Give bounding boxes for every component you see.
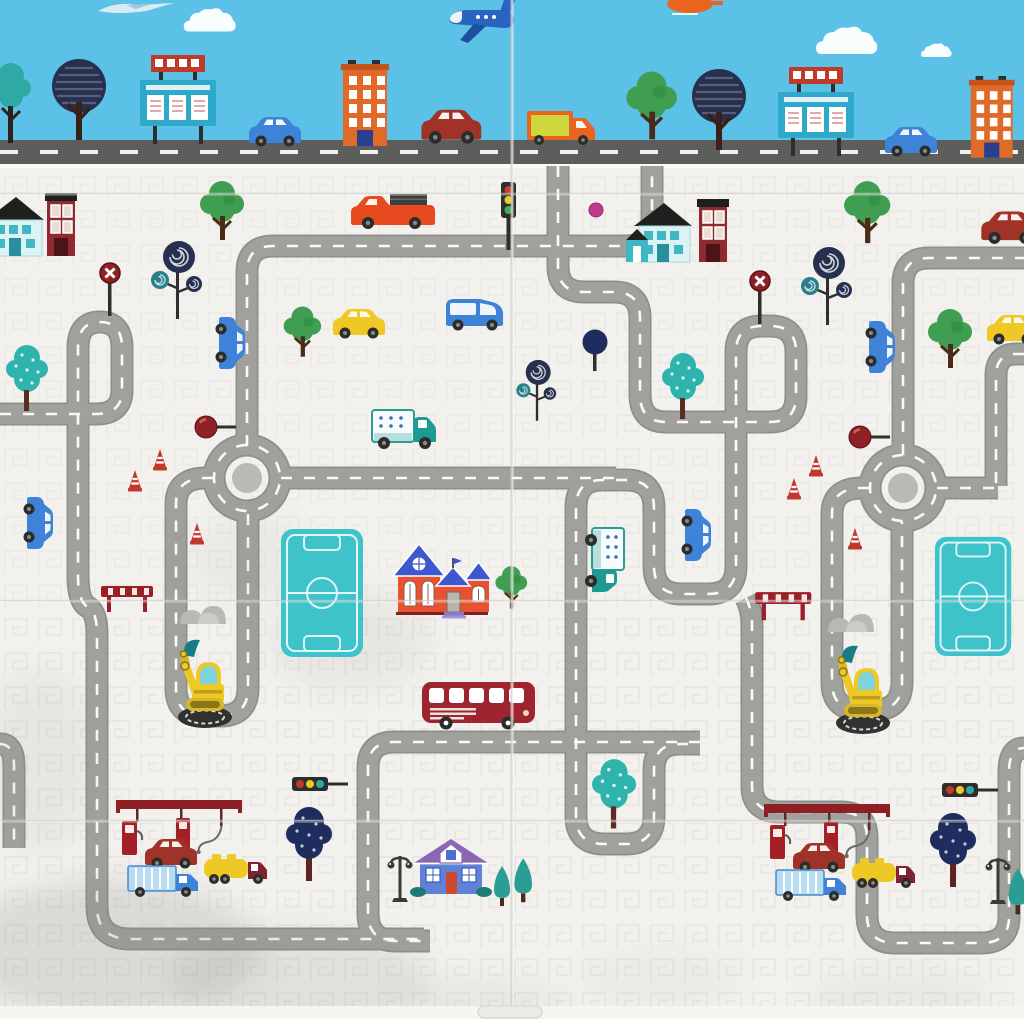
play-mat-photo (0, 0, 1024, 1024)
roundabout-island (232, 463, 262, 493)
mat-fold-tab (478, 1006, 542, 1018)
pickup-icon (351, 194, 435, 229)
roundabout-island (888, 473, 918, 503)
field-icon (281, 529, 363, 657)
house-tall-red-icon (45, 193, 77, 256)
mat-bottom-edge (0, 1006, 1024, 1024)
smudge (580, 950, 740, 1010)
bus-icon (422, 682, 535, 730)
building-orange-icon (341, 60, 389, 146)
house-tall-red-icon (697, 199, 729, 262)
dot-magenta-icon (589, 203, 603, 217)
building-orange-icon (969, 76, 1015, 158)
field-icon (935, 537, 1011, 656)
van-blue-icon (446, 299, 503, 331)
